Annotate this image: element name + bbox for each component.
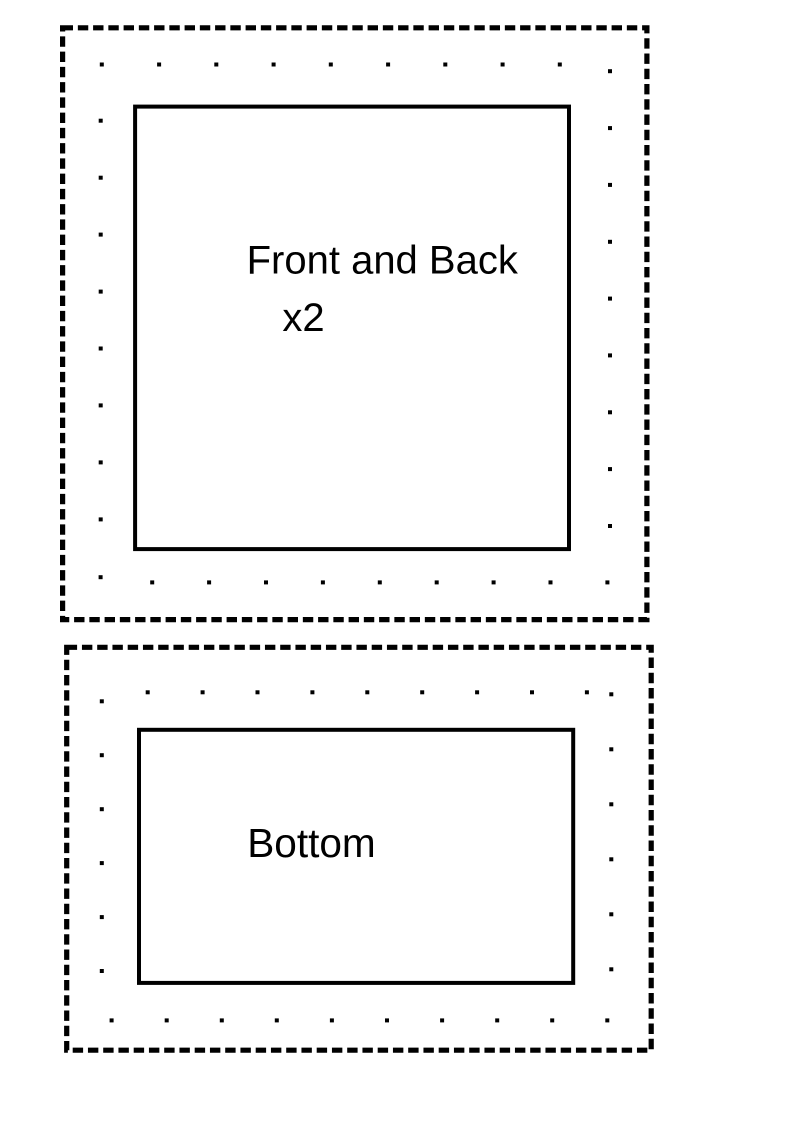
svg-text:Bottom: Bottom xyxy=(247,820,376,866)
svg-text:Front and Back: Front and Back xyxy=(247,239,519,283)
svg-text:x2: x2 xyxy=(282,296,324,340)
